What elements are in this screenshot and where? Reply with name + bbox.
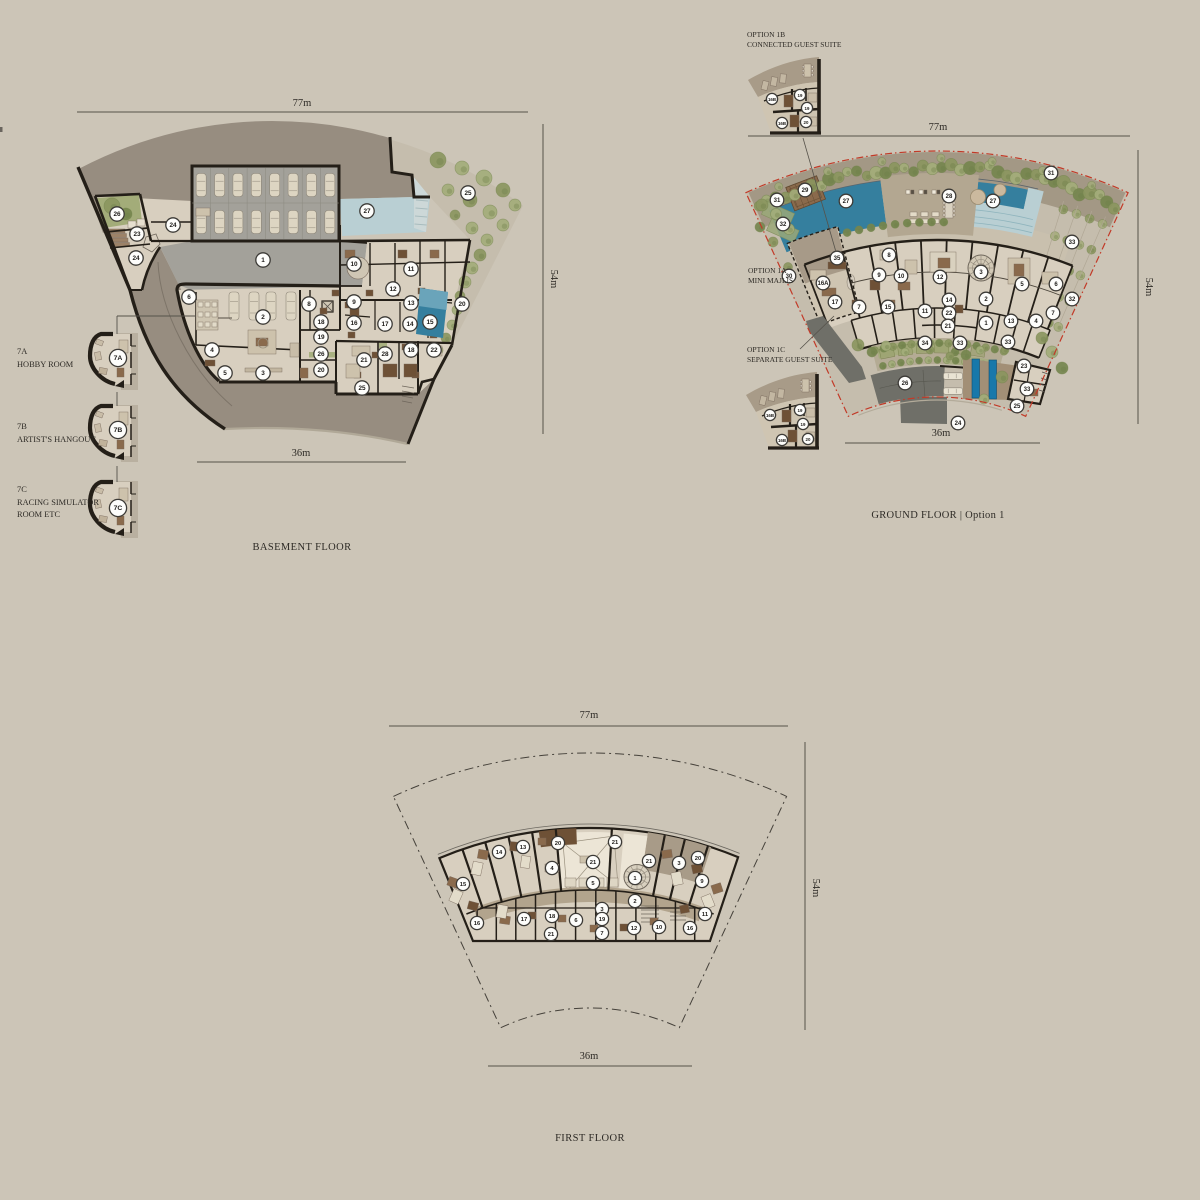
svg-text:17: 17 bbox=[521, 917, 527, 923]
svg-text:24: 24 bbox=[955, 421, 962, 427]
svg-text:77m: 77m bbox=[580, 710, 599, 721]
svg-text:11: 11 bbox=[408, 266, 415, 273]
svg-text:ROOM ETC: ROOM ETC bbox=[17, 510, 60, 519]
svg-text:FIRST FLOOR: FIRST FLOOR bbox=[555, 1133, 625, 1144]
svg-text:28: 28 bbox=[381, 351, 389, 358]
svg-text:OPTION 1A: OPTION 1A bbox=[748, 266, 787, 275]
svg-text:27: 27 bbox=[363, 208, 371, 215]
svg-text:26: 26 bbox=[902, 381, 909, 387]
svg-text:27: 27 bbox=[843, 199, 850, 205]
svg-text:ARTIST'S HANGOUT: ARTIST'S HANGOUT bbox=[17, 435, 95, 444]
svg-text:19: 19 bbox=[798, 408, 803, 413]
svg-text:7A: 7A bbox=[17, 347, 27, 356]
svg-text:21: 21 bbox=[612, 840, 619, 846]
svg-text:BASEMENT FLOOR: BASEMENT FLOOR bbox=[252, 542, 351, 553]
svg-text:23: 23 bbox=[1021, 364, 1028, 370]
svg-text:21: 21 bbox=[360, 357, 368, 364]
svg-text:SEPARATE GUEST SUITE: SEPARATE GUEST SUITE bbox=[747, 355, 833, 364]
svg-text:31: 31 bbox=[1048, 171, 1055, 177]
svg-text:12: 12 bbox=[389, 286, 397, 293]
svg-text:7C: 7C bbox=[114, 505, 123, 512]
svg-text:8: 8 bbox=[307, 301, 311, 308]
svg-text:32: 32 bbox=[1069, 297, 1076, 303]
svg-text:19: 19 bbox=[798, 93, 803, 98]
svg-text:14: 14 bbox=[496, 850, 503, 856]
svg-text:7B: 7B bbox=[114, 427, 123, 434]
svg-text:26: 26 bbox=[317, 351, 325, 358]
svg-text:21: 21 bbox=[590, 860, 597, 866]
svg-text:7B: 7B bbox=[17, 422, 27, 431]
svg-text:HOBBY ROOM: HOBBY ROOM bbox=[17, 360, 74, 369]
svg-text:19: 19 bbox=[805, 106, 810, 111]
svg-text:2: 2 bbox=[633, 899, 636, 905]
svg-text:36m: 36m bbox=[292, 448, 311, 459]
svg-text:OPTION 1C: OPTION 1C bbox=[747, 345, 785, 354]
svg-text:35: 35 bbox=[834, 256, 841, 262]
svg-text:15: 15 bbox=[885, 305, 892, 311]
svg-text:31: 31 bbox=[774, 198, 781, 204]
svg-text:11: 11 bbox=[702, 912, 709, 918]
svg-text:17: 17 bbox=[381, 321, 389, 328]
svg-text:21: 21 bbox=[548, 932, 555, 938]
svg-text:36m: 36m bbox=[580, 1051, 599, 1062]
svg-text:54m: 54m bbox=[548, 270, 559, 289]
svg-text:6: 6 bbox=[187, 294, 191, 301]
svg-text:19: 19 bbox=[599, 917, 606, 923]
svg-text:7A: 7A bbox=[114, 355, 123, 362]
svg-text:22: 22 bbox=[946, 311, 953, 317]
svg-text:1: 1 bbox=[261, 257, 265, 264]
svg-text:25: 25 bbox=[1014, 404, 1021, 410]
svg-text:4: 4 bbox=[210, 347, 214, 354]
svg-text:13: 13 bbox=[520, 845, 527, 851]
svg-text:18: 18 bbox=[549, 914, 556, 920]
svg-text:10: 10 bbox=[656, 925, 662, 931]
svg-text:34: 34 bbox=[922, 341, 929, 347]
svg-text:28: 28 bbox=[946, 194, 953, 200]
svg-text:19: 19 bbox=[801, 422, 806, 427]
svg-text:54m: 54m bbox=[1143, 278, 1154, 297]
svg-text:54m: 54m bbox=[810, 879, 821, 898]
svg-text:16A: 16A bbox=[817, 281, 829, 287]
svg-text:2: 2 bbox=[261, 314, 265, 321]
svg-text:11: 11 bbox=[922, 309, 929, 315]
svg-text:33: 33 bbox=[1069, 240, 1076, 246]
svg-text:77m: 77m bbox=[929, 122, 948, 133]
svg-text:7: 7 bbox=[600, 931, 603, 937]
svg-text:12: 12 bbox=[937, 275, 944, 281]
svg-text:GROUND FLOOR | Option 1: GROUND FLOOR | Option 1 bbox=[871, 510, 1004, 521]
svg-text:12: 12 bbox=[631, 926, 637, 932]
svg-text:77m: 77m bbox=[293, 98, 312, 109]
svg-text:20: 20 bbox=[555, 841, 561, 847]
svg-text:OPTION 1B: OPTION 1B bbox=[747, 30, 785, 39]
svg-text:7C: 7C bbox=[17, 485, 27, 494]
svg-text:16: 16 bbox=[687, 926, 694, 932]
svg-text:29: 29 bbox=[802, 188, 809, 194]
svg-text:22: 22 bbox=[430, 347, 438, 354]
svg-text:25: 25 bbox=[464, 190, 472, 197]
svg-text:21: 21 bbox=[646, 859, 653, 865]
svg-text:36m: 36m bbox=[932, 428, 951, 439]
svg-text:33: 33 bbox=[957, 341, 964, 347]
svg-text:16B: 16B bbox=[778, 121, 786, 126]
svg-text:3: 3 bbox=[261, 370, 265, 377]
svg-text:10: 10 bbox=[350, 261, 358, 268]
svg-text:MINI MAJLIS: MINI MAJLIS bbox=[748, 276, 793, 285]
svg-text:14: 14 bbox=[946, 298, 953, 304]
svg-text:24: 24 bbox=[169, 222, 177, 229]
svg-text:14: 14 bbox=[406, 321, 414, 328]
svg-text:32: 32 bbox=[780, 222, 787, 228]
svg-text:19: 19 bbox=[317, 334, 325, 341]
svg-text:15: 15 bbox=[426, 319, 434, 326]
svg-text:20: 20 bbox=[317, 367, 325, 374]
svg-text:20: 20 bbox=[804, 120, 809, 125]
svg-text:25: 25 bbox=[358, 385, 366, 392]
svg-text:16: 16 bbox=[474, 921, 481, 927]
svg-text:23: 23 bbox=[133, 231, 141, 238]
svg-text:5: 5 bbox=[223, 370, 227, 377]
svg-text:18: 18 bbox=[407, 347, 415, 354]
svg-text:10: 10 bbox=[898, 274, 905, 280]
svg-text:13: 13 bbox=[407, 300, 415, 307]
svg-text:CONNECTED GUEST SUITE: CONNECTED GUEST SUITE bbox=[747, 40, 842, 49]
svg-text:16B: 16B bbox=[778, 438, 786, 443]
svg-text:33: 33 bbox=[1005, 340, 1012, 346]
svg-text:16B: 16B bbox=[766, 413, 774, 418]
svg-text:18: 18 bbox=[317, 319, 325, 326]
svg-text:15: 15 bbox=[460, 882, 467, 888]
svg-text:9: 9 bbox=[352, 299, 356, 306]
svg-text:16: 16 bbox=[350, 320, 358, 327]
svg-text:20: 20 bbox=[458, 301, 466, 308]
svg-text:RACING SIMULATOR: RACING SIMULATOR bbox=[17, 498, 99, 507]
svg-text:20: 20 bbox=[695, 856, 701, 862]
svg-text:24: 24 bbox=[132, 255, 140, 262]
svg-text:21: 21 bbox=[945, 324, 952, 330]
svg-text:26: 26 bbox=[113, 211, 121, 218]
svg-text:27: 27 bbox=[990, 199, 997, 205]
svg-text:17: 17 bbox=[832, 300, 839, 306]
svg-text:13: 13 bbox=[1008, 319, 1015, 325]
svg-text:33: 33 bbox=[1024, 387, 1031, 393]
svg-text:20: 20 bbox=[806, 437, 811, 442]
svg-text:16B: 16B bbox=[768, 97, 776, 102]
